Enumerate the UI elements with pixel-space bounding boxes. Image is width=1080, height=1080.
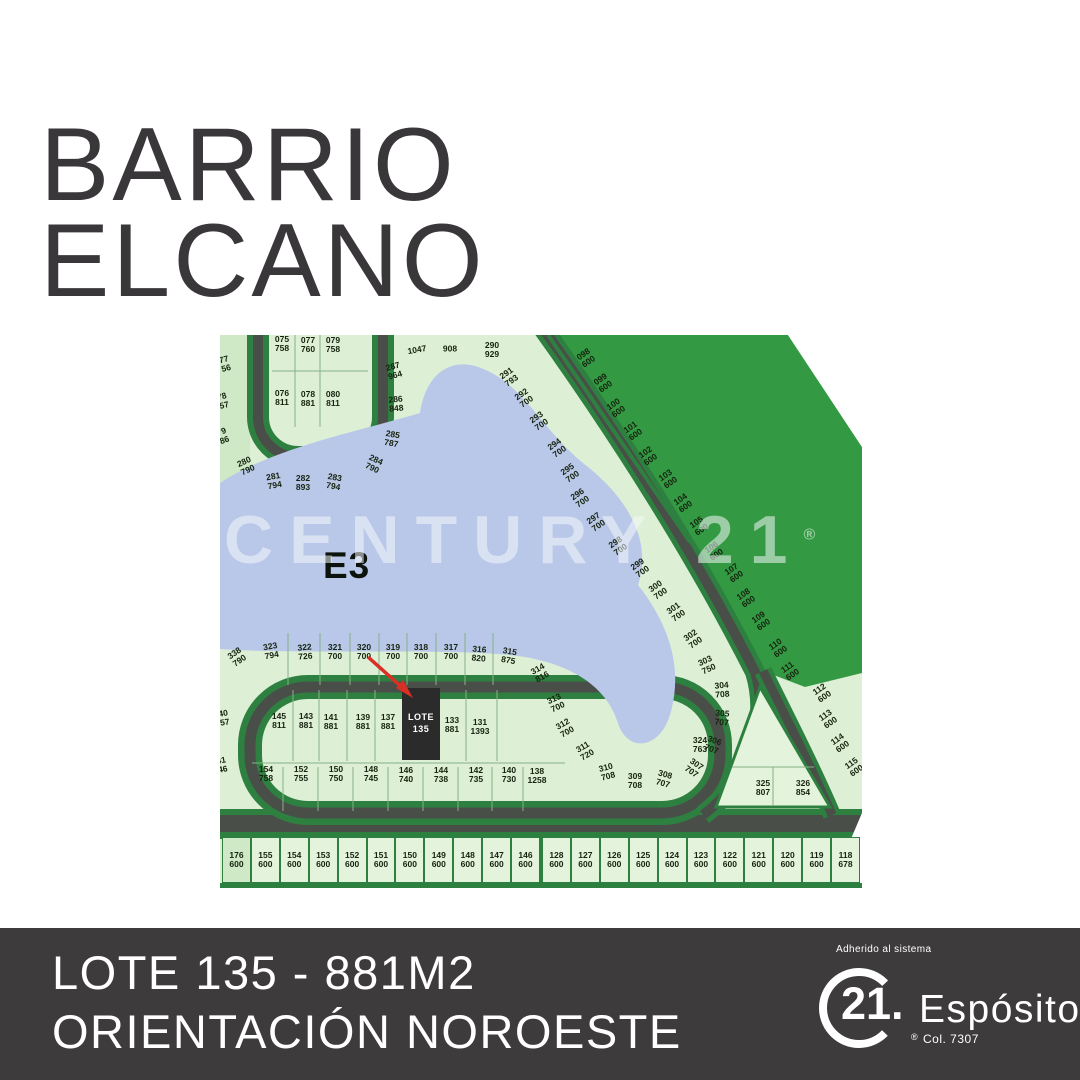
lot-label: 137881: [381, 713, 395, 731]
lot-label: 290929: [485, 341, 499, 359]
footer-text: LOTE 135 - 881M2 ORIENTACIÓN NOROESTE: [52, 944, 682, 1062]
lot-label: 286848: [388, 394, 404, 413]
lot-label: 318700: [414, 643, 428, 661]
lot-label: 142735: [469, 766, 483, 784]
lot-label: 077760: [301, 336, 315, 354]
c21-number: 21.: [841, 978, 904, 1030]
strip-lot-cell: 126600: [600, 837, 629, 883]
lot-label: 140730: [502, 766, 516, 784]
strip-lot-cell: 176600: [222, 837, 251, 883]
strip-lot-cell: 128600: [540, 837, 571, 883]
lot-label: 281794: [265, 471, 282, 491]
lot-label: 319700: [386, 643, 400, 661]
strip-lot-cell: 118678: [831, 837, 860, 883]
lot-label: 315875: [500, 646, 517, 666]
lot-label: 326854: [796, 779, 810, 797]
title-line1: BARRIO: [40, 118, 486, 214]
lot-label: 080811: [326, 390, 340, 408]
strip-lot-cell: 147600: [482, 837, 511, 883]
strip-lot-cell: 119600: [802, 837, 831, 883]
selected-lot-box: LOTE 135: [402, 688, 440, 760]
lot-label: 282893: [296, 474, 310, 492]
registered-icon: ®: [911, 1032, 918, 1042]
strip-lot-cell: 149600: [424, 837, 453, 883]
lot-label: 323794: [262, 641, 279, 661]
title-line2: ELCANO: [40, 214, 486, 310]
lot-label: 076811: [275, 389, 289, 407]
strip-lot-cell: 148600: [453, 837, 482, 883]
strip-lot-cell: 122600: [715, 837, 744, 883]
license-number: Col. 7307: [923, 1032, 979, 1046]
lot-label: 325807: [756, 779, 770, 797]
strip-lot-cell: 127600: [571, 837, 600, 883]
lot-label: 152755: [294, 765, 308, 783]
lot-label: 154758: [259, 765, 273, 783]
page-title: BARRIO ELCANO: [40, 118, 486, 309]
lot-label: 141881: [324, 713, 338, 731]
adherido-text: Adherido al sistema: [836, 944, 931, 955]
lot-label: 324763: [693, 736, 707, 754]
lot-label: 143881: [299, 712, 313, 730]
strip-lot-cell: 154600: [280, 837, 309, 883]
strip-lot-cell: 146600: [511, 837, 540, 883]
bottom-lot-strip: 1766001556001546001536001526001516001506…: [222, 837, 860, 883]
lot-label: 321700: [328, 643, 342, 661]
strip-lot-cell: 151600: [367, 837, 396, 883]
brand-name: Espósito: [919, 988, 1080, 1032]
lot-label: 148745: [364, 765, 378, 783]
lot-label: 144738: [434, 766, 448, 784]
strip-lot-cell: 124600: [658, 837, 687, 883]
lot-label: 078881: [301, 390, 315, 408]
lot-label: 316820: [471, 644, 487, 663]
lot-label: 146740: [399, 766, 413, 784]
selected-lot-line1: LOTE: [408, 712, 434, 724]
bottom-strip-border: [220, 883, 862, 888]
zone-label: E3: [323, 545, 370, 587]
lot-label: 322726: [297, 642, 313, 661]
lot-label: 304708: [714, 680, 730, 699]
strip-lot-cell: 121600: [744, 837, 773, 883]
selected-lot-line2: 135: [413, 724, 430, 736]
lot-label: 133881: [445, 716, 459, 734]
lot-label: 320700: [357, 643, 371, 661]
strip-lot-cell: 153600: [309, 837, 338, 883]
lot-label: 150750: [329, 765, 343, 783]
real-estate-flyer: BARRIO ELCANO: [0, 0, 1080, 1080]
lot-label: 283794: [325, 472, 342, 492]
lot-label: 079758: [326, 336, 340, 354]
footer-bar: LOTE 135 - 881M2 ORIENTACIÓN NOROESTE Ad…: [0, 928, 1080, 1080]
lot-label: 305707: [714, 708, 730, 727]
strip-lot-cell: 155600: [251, 837, 280, 883]
century21-logo: Adherido al sistema 21. ® Espósito Col. …: [815, 928, 1080, 1080]
lot-label: 317700: [444, 643, 458, 661]
lot-label: 908: [443, 345, 457, 354]
lot-label: 139881: [356, 713, 370, 731]
strip-lot-cell: 152600: [338, 837, 367, 883]
lot-label: 1311393: [471, 718, 490, 736]
strip-lot-cell: 123600: [687, 837, 716, 883]
lot-map: 0757580777600797580768110788810808117756…: [220, 335, 862, 888]
lot-label: 309708: [628, 772, 642, 790]
lot-info: LOTE 135 - 881M2: [52, 944, 682, 1003]
orientation-info: ORIENTACIÓN NOROESTE: [52, 1003, 682, 1062]
strip-lot-cell: 150600: [395, 837, 424, 883]
lot-label: 285787: [383, 429, 400, 449]
lot-label: 075758: [275, 335, 289, 353]
strip-lot-cell: 120600: [773, 837, 802, 883]
lot-label: 145811: [272, 712, 286, 730]
lot-label: 1381258: [528, 767, 547, 785]
strip-lot-cell: 125600: [629, 837, 658, 883]
